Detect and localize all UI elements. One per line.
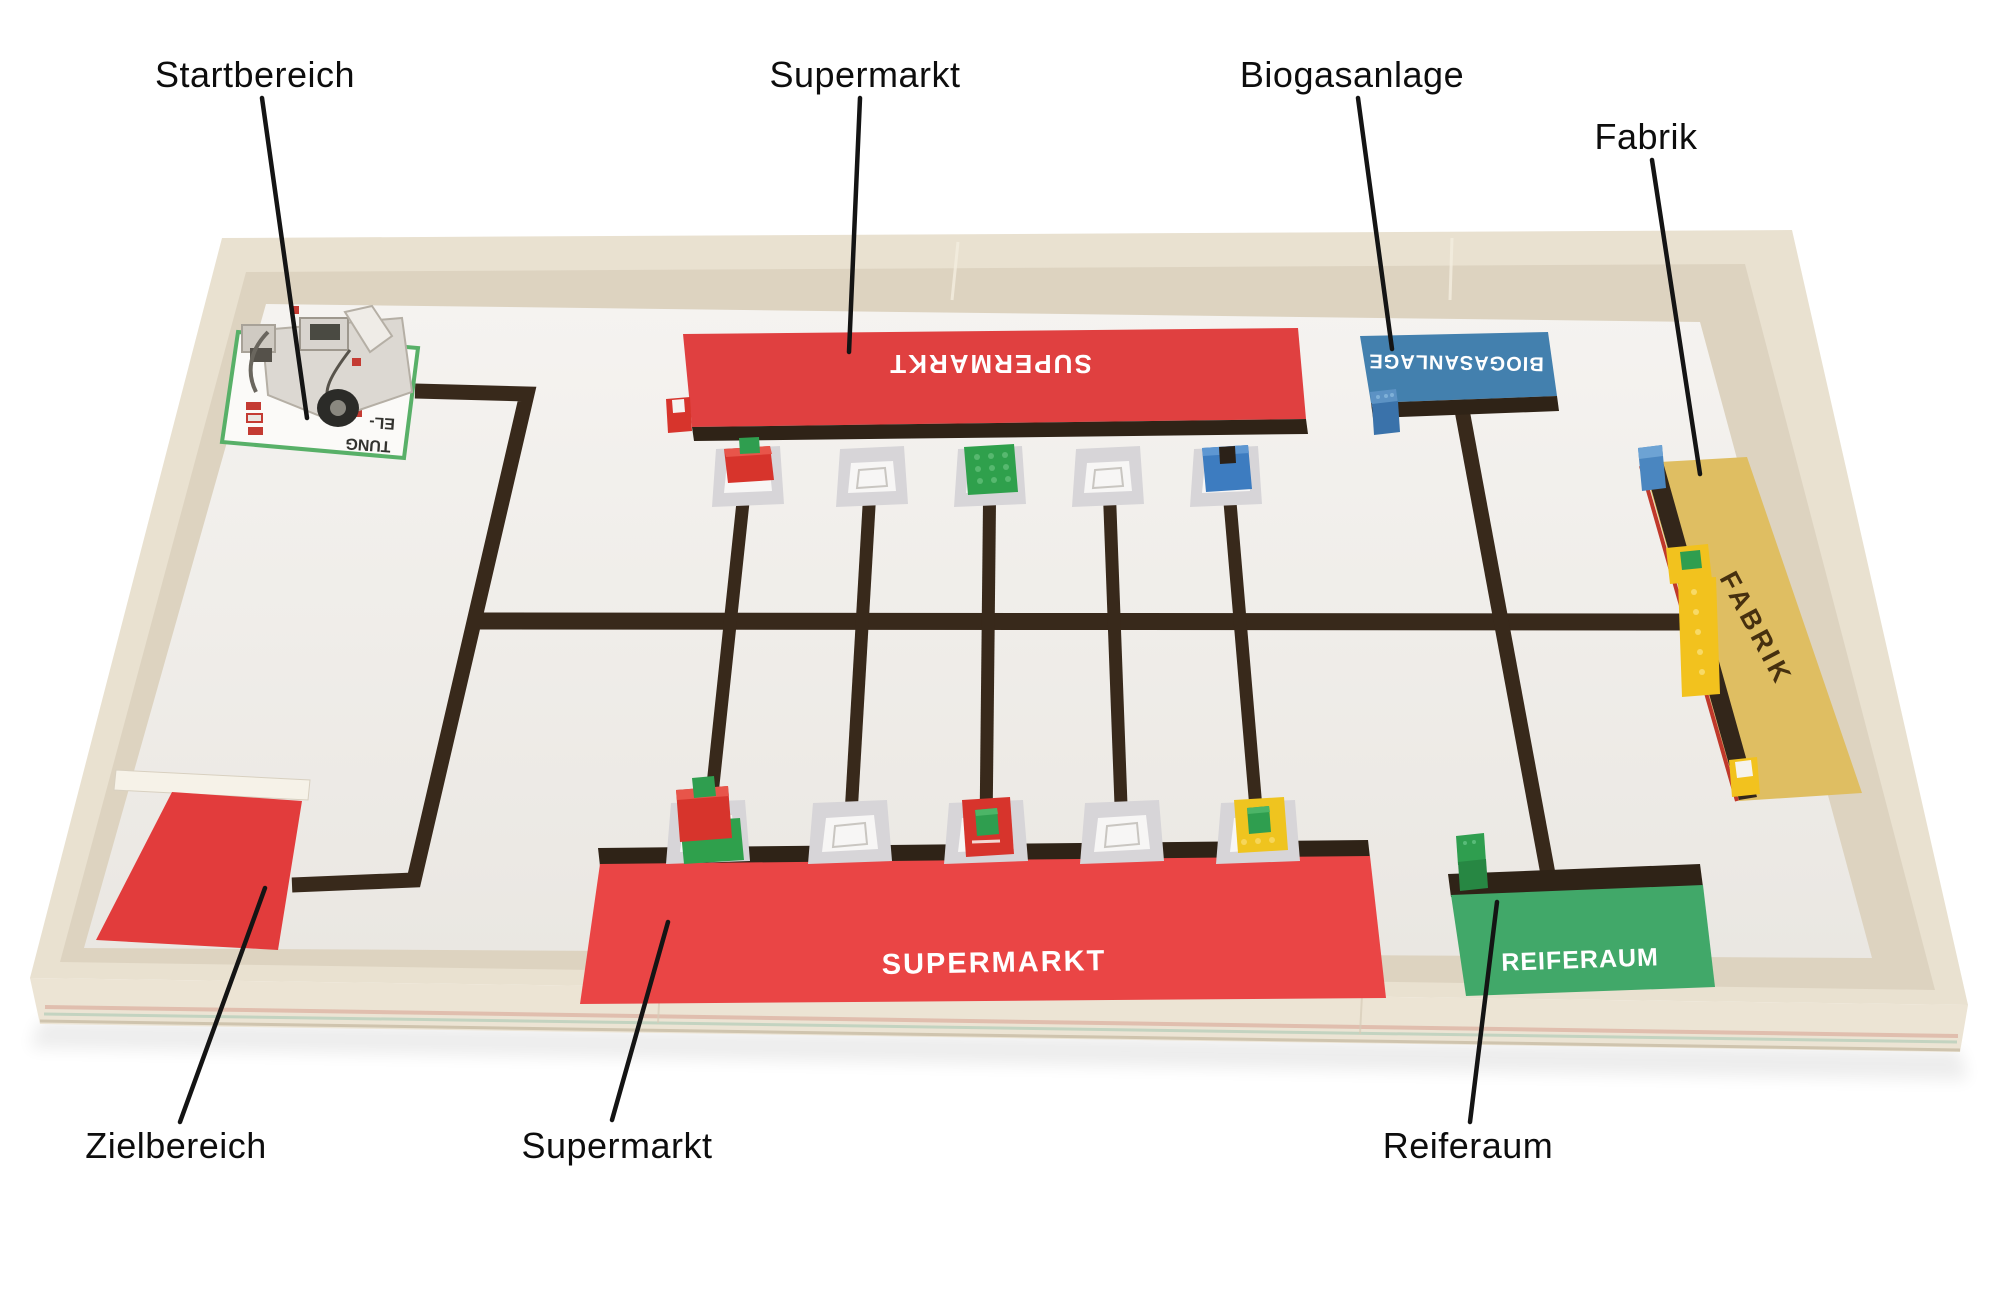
yellow-beam-fabrik [1678, 577, 1720, 697]
pallet-marker [1080, 800, 1164, 864]
start-card-text-fragment: EL- [369, 413, 396, 432]
board-photo: SUPERMARKT BIOGASANLAGE FABRIK REIFERAUM… [0, 0, 2000, 1293]
blue-piece-fabrik [1638, 445, 1666, 491]
cargo-green-plate-top [964, 444, 1018, 495]
card-flag [248, 427, 263, 435]
diagram-stage: SUPERMARKT BIOGASANLAGE FABRIK REIFERAUM… [0, 0, 2000, 1293]
zone-label-supermarkt-bottom: SUPERMARKT [881, 945, 1106, 981]
zone-fill [580, 856, 1386, 1004]
label-startbereich: Startbereich [155, 54, 355, 96]
robot-left-pod [242, 325, 275, 352]
robot-wheel-hub [330, 400, 346, 416]
zone-label-reiferaum: REIFERAUM [1501, 943, 1659, 976]
red-brick-top-banner-corner [666, 397, 692, 433]
cargo-yellow-plate-green-brick [1234, 797, 1288, 853]
card-flag [247, 414, 262, 422]
pallet-marker [1072, 446, 1144, 507]
start-card-text-fragment: TUNG [345, 434, 391, 454]
road-connector-3 [986, 455, 990, 832]
yellow-white-brick-fabrik [1729, 757, 1760, 797]
blue-brick-biogasanlage [1370, 389, 1400, 435]
pallet-marker [836, 446, 908, 507]
zone-label-biogasanlage: BIOGASANLAGE [1368, 349, 1544, 374]
cargo-red-plate-green-brick [962, 797, 1014, 857]
label-zielbereich: Zielbereich [85, 1125, 267, 1167]
frame-seam [1450, 238, 1452, 300]
green-brick-reiferaum [1456, 833, 1488, 891]
zone-label-supermarkt-top: SUPERMARKT [888, 349, 1091, 379]
pallet-marker [808, 800, 892, 864]
cargo-blue-block-top [1202, 445, 1252, 492]
label-fabrik: Fabrik [1594, 116, 1697, 158]
label-reiferaum: Reiferaum [1383, 1125, 1554, 1167]
robot-screen [310, 324, 340, 340]
label-biogasanlage: Biogasanlage [1240, 54, 1464, 96]
zone-supermarkt-bottom: SUPERMARKT [580, 840, 1386, 1004]
label-supermarkt-top: Supermarkt [769, 54, 960, 96]
label-supermarkt-bottom: Supermarkt [521, 1125, 712, 1167]
robot-red-accent [352, 358, 361, 366]
card-flag [246, 402, 261, 410]
zone-supermarkt-top: SUPERMARKT [683, 328, 1308, 441]
